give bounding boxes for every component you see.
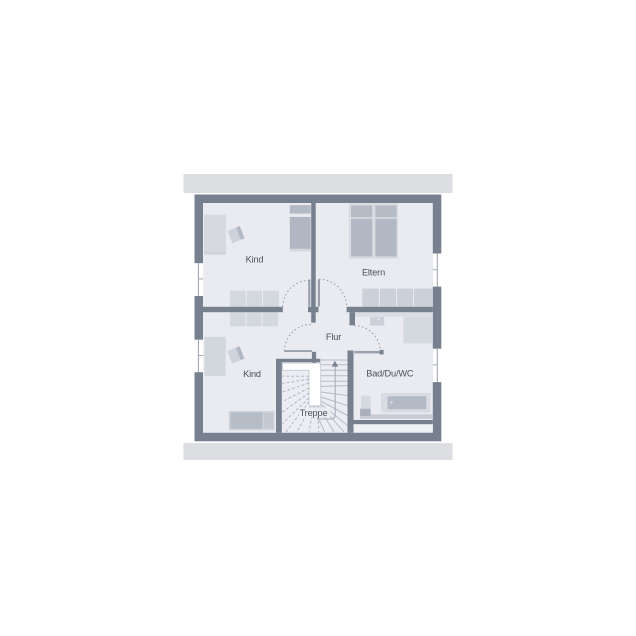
svg-text:Kind: Kind xyxy=(243,369,261,379)
svg-text:Kind: Kind xyxy=(246,254,264,264)
svg-text:Eltern: Eltern xyxy=(362,268,385,278)
svg-text:Flur: Flur xyxy=(326,332,341,342)
svg-text:Bad/Du/WC: Bad/Du/WC xyxy=(366,368,414,378)
svg-text:Treppe: Treppe xyxy=(300,408,328,418)
